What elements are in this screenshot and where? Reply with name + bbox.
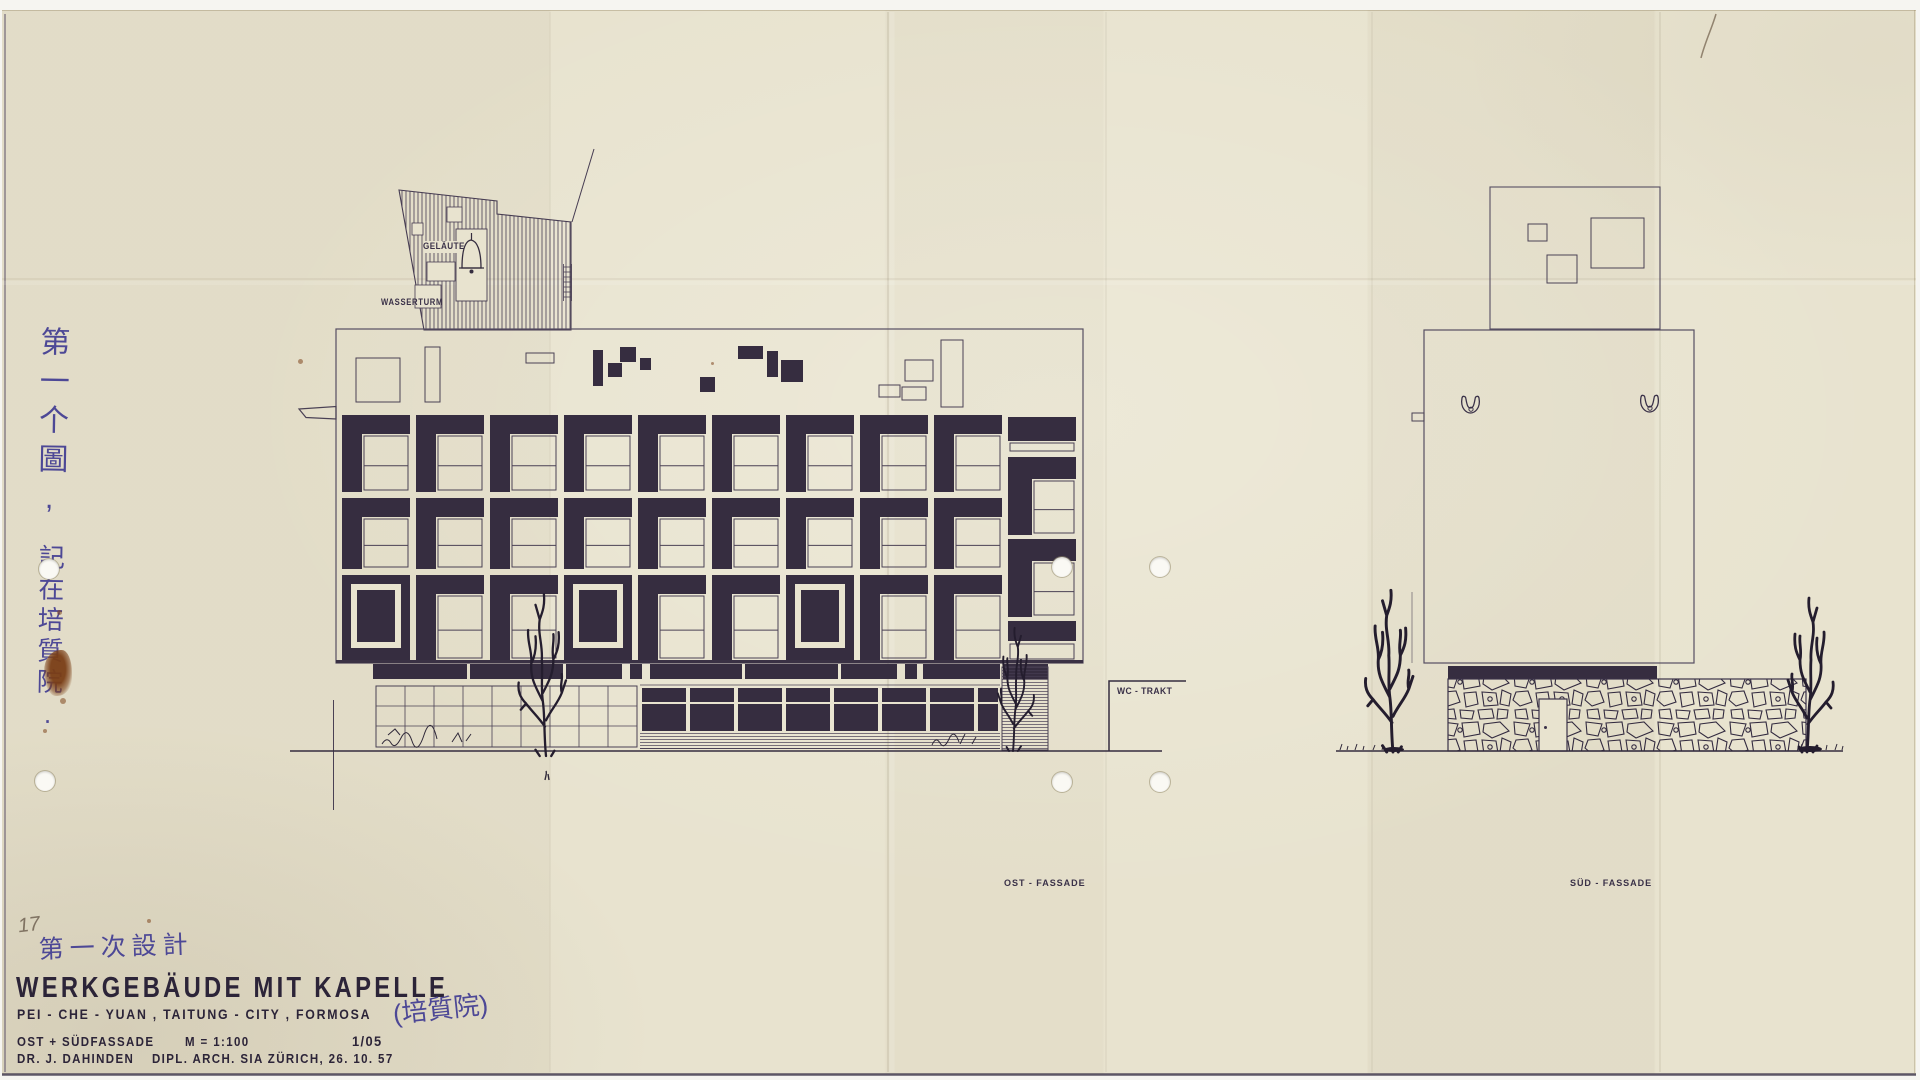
door bbox=[1539, 699, 1567, 751]
label-sued-fassade: SÜD - FASSADE bbox=[1570, 878, 1652, 889]
punch-hole bbox=[39, 559, 59, 579]
fold-creases bbox=[2, 12, 1916, 1072]
sheet-edges bbox=[2, 10, 1916, 1075]
sheet-subtitle: PEI - CHE - YUAN , TAITUNG - CITY , FORM… bbox=[17, 1006, 371, 1022]
recess-shadow-band bbox=[1448, 666, 1657, 679]
stone-wall bbox=[1448, 679, 1806, 751]
author-name: DR. J. DAHINDEN bbox=[17, 1052, 134, 1066]
punch-hole bbox=[1150, 772, 1170, 792]
sill-hatch bbox=[640, 733, 1000, 748]
label-wc-trakt: WC - TRAKT bbox=[1117, 686, 1172, 697]
punch-hole bbox=[1052, 772, 1072, 792]
stain-dot bbox=[298, 359, 303, 364]
facade-line: OST + SÜDFASSADE bbox=[17, 1035, 154, 1049]
ground-tuft bbox=[545, 771, 549, 780]
architectural-drawing bbox=[0, 0, 1920, 1080]
planting-scribble-left bbox=[382, 725, 471, 747]
door-knob bbox=[1544, 726, 1547, 729]
gargoyle-spout-left bbox=[1462, 396, 1480, 413]
zh-design-note: 第一次設計 bbox=[38, 925, 194, 966]
label-ost-fassade: OST - FASSADE bbox=[1004, 878, 1086, 889]
punch-hole bbox=[35, 771, 55, 791]
stain-dot bbox=[60, 698, 66, 704]
label-wasserturm: WASSERTURM bbox=[381, 297, 443, 307]
misc-marks bbox=[1701, 14, 1716, 58]
south-facade bbox=[1336, 187, 1843, 752]
south-tower bbox=[1490, 187, 1660, 329]
gargoyle-spout-right bbox=[1641, 395, 1659, 412]
scanned-architectural-sheet: { "labels": { "gelaeute": "GELÄUTE", "wa… bbox=[0, 0, 1920, 1080]
stain-dot bbox=[711, 362, 714, 365]
sheet-number: 1/05 bbox=[352, 1033, 383, 1049]
mast-line bbox=[572, 149, 594, 222]
window-grid bbox=[342, 415, 1076, 747]
stain-dot bbox=[57, 610, 62, 615]
zh-side-note-upper: 第一个圖, bbox=[26, 326, 73, 525]
south-tower-openings bbox=[1528, 218, 1644, 283]
south-body bbox=[1424, 330, 1694, 663]
parapet-outlines bbox=[356, 340, 963, 407]
stain-dot bbox=[43, 729, 47, 733]
canopy bbox=[299, 407, 336, 420]
rust-stain bbox=[44, 650, 72, 696]
pen-scratch bbox=[1701, 14, 1716, 58]
punch-hole bbox=[1052, 557, 1072, 577]
label-gelaeute: GELÄUTE bbox=[423, 241, 465, 251]
storefront-glazing bbox=[376, 686, 637, 747]
sheet-title: WERKGEBÄUDE MIT KAPELLE bbox=[16, 972, 448, 1005]
stain-dot bbox=[147, 919, 151, 923]
parapet-dark-blocks bbox=[593, 346, 803, 392]
left-nub bbox=[1412, 413, 1424, 421]
scale-value: M = 1:100 bbox=[185, 1035, 250, 1049]
floor-slab-line bbox=[336, 660, 1083, 663]
punch-hole bbox=[1150, 557, 1170, 577]
author-credentials: DIPL. ARCH. SIA ZÜRICH, 26. 10. 57 bbox=[152, 1052, 394, 1066]
